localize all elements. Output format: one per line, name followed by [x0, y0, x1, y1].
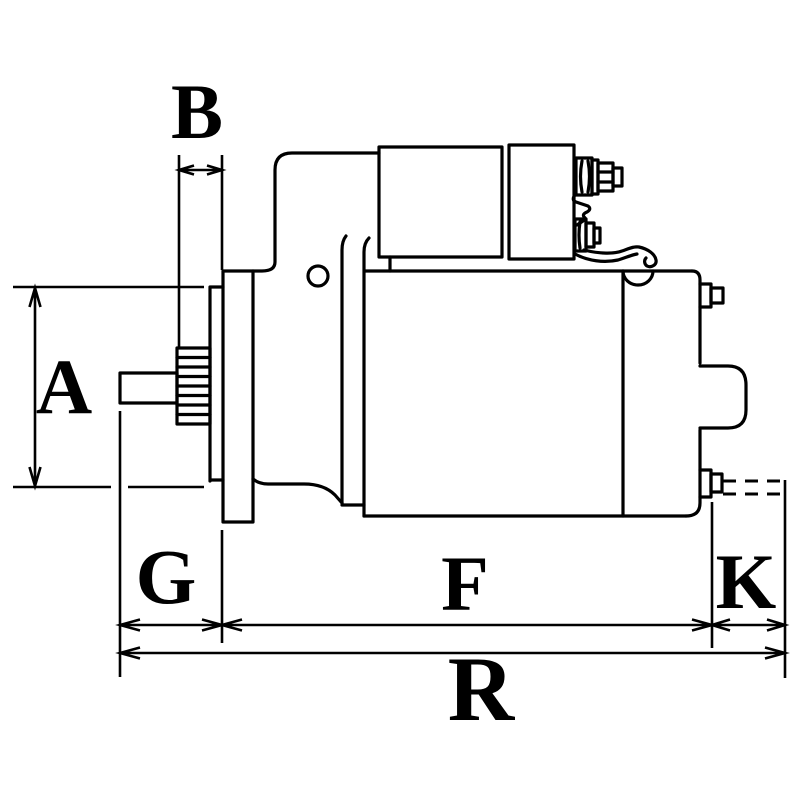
dimension-label-a: A	[36, 343, 92, 430]
terminal-stud-top	[576, 158, 622, 195]
housing-bottom-contour	[253, 479, 364, 505]
rear-end-cap-edge	[686, 271, 700, 516]
mounting-flange	[223, 271, 253, 522]
drive-housing-neck	[253, 153, 379, 271]
housing-joint-line-left	[342, 236, 346, 503]
dimension-label-r: R	[448, 638, 516, 740]
dimension-label-b: B	[171, 68, 223, 155]
dimension-label-k: K	[716, 538, 777, 625]
rear-boss	[700, 366, 746, 428]
solenoid-body	[379, 147, 502, 257]
end-cap-notch-arc	[623, 271, 653, 285]
drawing-canvas: B A G F K R	[0, 0, 800, 800]
stud-top-tip	[613, 168, 622, 186]
field-strap-lower	[575, 254, 637, 261]
through-bolt-bottom-head	[711, 474, 722, 492]
terminal-stud-bottom	[575, 219, 600, 251]
through-bolt-top-washer	[700, 284, 711, 307]
pilot-ring	[210, 287, 223, 481]
through-bolt-bottom-washer	[700, 470, 711, 497]
through-bolt-top-head	[711, 288, 723, 303]
stud-bottom-collar-curve	[579, 222, 580, 248]
stud-bottom-tip	[594, 228, 600, 243]
stud-top-nut-facets	[598, 172, 613, 182]
dim-g-line	[120, 620, 222, 631]
dimension-label-g: G	[136, 533, 197, 620]
starter-motor-technical-drawing: B A G F K R	[0, 0, 800, 800]
pinion-gear-teeth	[177, 358, 210, 415]
solenoid-end-cap	[509, 145, 574, 259]
field-strap-upper	[584, 247, 656, 267]
housing-joint-line-right	[364, 238, 369, 516]
dim-b-arrow	[179, 166, 222, 175]
housing-hole	[308, 266, 328, 286]
dimension-label-f: F	[441, 540, 489, 627]
drive-shaft	[120, 373, 177, 403]
stud-top-collar-curves	[581, 161, 590, 192]
motor-outline-group	[120, 145, 785, 522]
stud-top-nut	[598, 163, 613, 191]
